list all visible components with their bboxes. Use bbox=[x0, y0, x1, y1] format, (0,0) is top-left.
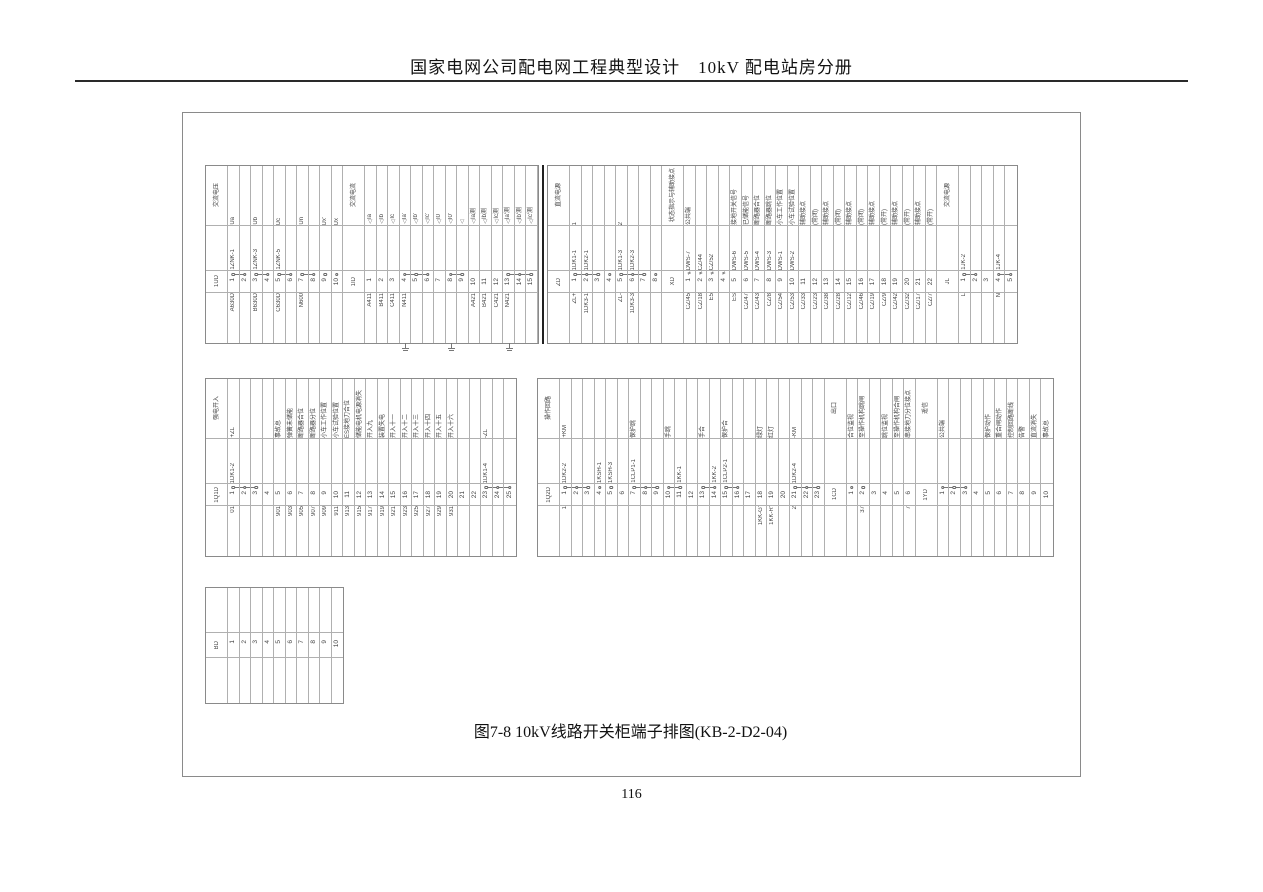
inner-wire-number: 1DK2-1 bbox=[583, 250, 591, 270]
terminal-column: CZ/52≠3E5 bbox=[707, 166, 719, 343]
test-terminal-mark: ▽ bbox=[449, 219, 453, 225]
document-page: 国家电网公司配电网工程典型设计 10kV 配电站房分册 交流电压1UDUa1ZN… bbox=[0, 0, 1263, 892]
terminal-number: 5 bbox=[275, 491, 283, 495]
terminal-point bbox=[608, 273, 612, 277]
terminal-point bbox=[461, 273, 465, 277]
inner-wire-number: 1KSH-1 bbox=[596, 462, 604, 483]
outer-wire-number: CZ/43 bbox=[754, 293, 762, 309]
terminal-point bbox=[817, 486, 821, 490]
outer-wire-number: CZ/8 bbox=[766, 293, 774, 306]
terminal-column: 辅助接点13CZ/38 bbox=[822, 166, 834, 343]
terminal-column: 辅助接点11CZ/33 bbox=[799, 166, 811, 343]
terminal-label: Ib'测 bbox=[516, 207, 524, 219]
terminal-label: Ib' bbox=[412, 213, 420, 219]
terminal-symbol-area bbox=[366, 484, 377, 491]
terminal-number: 11 bbox=[800, 278, 808, 285]
terminal-label: 事故总 bbox=[1043, 420, 1051, 438]
terminal-number: 4 bbox=[264, 640, 272, 644]
terminal-number: 11 bbox=[676, 491, 684, 498]
outer-wire-number: C411 bbox=[389, 293, 397, 307]
inner-wire-number: 1KK-1 bbox=[676, 466, 684, 483]
terminal-symbol-area bbox=[493, 484, 504, 491]
terminal-number: 11 bbox=[344, 491, 352, 498]
terminal-number: 8 bbox=[310, 278, 318, 282]
terminal-point bbox=[301, 273, 305, 277]
terminal-column: 3 bbox=[251, 588, 263, 703]
terminal-column: 1KK-214 bbox=[710, 379, 722, 556]
terminal-column: 5 bbox=[274, 588, 286, 703]
terminal-number: 15 bbox=[846, 278, 854, 285]
outer-wire-number: 929 bbox=[436, 506, 444, 516]
terminal-label: 小车试验位置 bbox=[333, 402, 341, 438]
terminal-label: (常闭) bbox=[812, 209, 820, 225]
terminal-column: 开入十五19929 bbox=[435, 379, 447, 556]
test-terminal-mark: ▽ bbox=[391, 219, 395, 225]
terminal-column: 24 bbox=[493, 379, 505, 556]
terminal-number: 1 bbox=[960, 278, 968, 282]
terminal-point bbox=[575, 486, 579, 490]
terminal-column: 合位监视1 bbox=[847, 379, 859, 556]
terminal-number: 7 bbox=[754, 278, 762, 282]
terminal-column: -ZL1DK1-423 bbox=[481, 379, 493, 556]
outer-wire-number: 911 bbox=[333, 506, 341, 516]
terminal-column: 辅助接点17CZ/19 bbox=[868, 166, 880, 343]
terminal-label: I0' bbox=[447, 213, 455, 219]
terminal-point bbox=[243, 273, 247, 277]
terminal-number: 8 bbox=[310, 640, 318, 644]
terminal-column: +ZL1DK1-2101 bbox=[228, 379, 240, 556]
terminal-label: 开入十二 bbox=[402, 414, 410, 438]
outer-wire-number: CZ/33 bbox=[800, 293, 808, 309]
terminal-column: (常开)18CZ/9 bbox=[880, 166, 892, 343]
terminal-symbol-area bbox=[880, 271, 891, 278]
terminal-number: 1 bbox=[561, 491, 569, 495]
terminal-column: 3 bbox=[583, 379, 595, 556]
inner-wire-number: 1CLP1-1 bbox=[630, 459, 638, 483]
table-header: 交流电流 bbox=[350, 183, 358, 207]
inner-wire-number: DWS-1 bbox=[777, 251, 785, 270]
table-header: 出口 bbox=[831, 402, 839, 414]
terminal-label: 红灯 bbox=[768, 426, 776, 438]
terminal-point bbox=[243, 486, 247, 490]
terminal-symbol-area bbox=[470, 484, 481, 491]
terminal-column: 22 bbox=[470, 379, 482, 556]
terminal-number: 23 bbox=[482, 491, 490, 498]
terminal-number: 5 bbox=[617, 278, 625, 282]
terminal-column: 手跳10 bbox=[664, 379, 676, 556]
terminal-number: 10 bbox=[333, 491, 341, 498]
terminal-number: 21 bbox=[915, 278, 923, 285]
terminal-number: 22 bbox=[803, 491, 811, 498]
terminal-number: 17 bbox=[413, 491, 421, 498]
terminal-column: CZ/44≠2CZ/18 bbox=[696, 166, 708, 343]
terminal-number: 7 bbox=[435, 278, 443, 282]
terminal-column: 1JK-44N bbox=[994, 166, 1006, 343]
terminal-point bbox=[415, 273, 419, 277]
terminal-column: 7 bbox=[297, 588, 309, 703]
terminal-point bbox=[656, 486, 660, 490]
terminal-number: 9 bbox=[1031, 491, 1039, 495]
terminal-symbol-area bbox=[811, 271, 822, 278]
outer-wire-number: 915 bbox=[356, 506, 364, 516]
terminal-point bbox=[794, 486, 798, 490]
terminal-point bbox=[403, 273, 407, 277]
terminal-number: 3 bbox=[983, 278, 991, 282]
terminal-number: 6 bbox=[905, 491, 913, 495]
terminal-point bbox=[496, 486, 500, 490]
terminal-point bbox=[324, 273, 328, 277]
outer-wire-number: ZL- bbox=[617, 293, 625, 302]
terminal-column: 直流消失9 bbox=[1030, 379, 1042, 556]
terminal-point bbox=[587, 486, 591, 490]
terminal-label: Un bbox=[298, 217, 306, 225]
outer-wire-number: 917 bbox=[367, 506, 375, 516]
terminal-number: 7 bbox=[1008, 491, 1016, 495]
terminal-symbol-area bbox=[424, 484, 435, 491]
inner-wire-number: DWS-2 bbox=[789, 251, 797, 270]
terminal-number: 12 bbox=[812, 278, 820, 285]
terminal-number: 14 bbox=[516, 278, 524, 285]
terminal-column: 1DK2-361DK3-3 bbox=[628, 166, 640, 343]
terminal-column: 小车试验位置DWS-210CZ/53 bbox=[788, 166, 800, 343]
terminal-strip-4: 操作回路1Q2D+KM1DK2-211231KSH-141KSH-356保护跳1… bbox=[537, 378, 1054, 557]
terminal-column: 3 bbox=[251, 379, 263, 556]
terminal-column: 5 bbox=[1005, 166, 1017, 343]
terminal-column: Ic测▽12C421 bbox=[492, 166, 504, 343]
terminal-label: 辅助接点 bbox=[800, 201, 808, 225]
terminal-label: Uc bbox=[275, 218, 283, 225]
terminal-column: 小车试验位置10911 bbox=[332, 379, 344, 556]
terminal-point bbox=[805, 486, 809, 490]
table-header: 交流电压 bbox=[213, 183, 221, 207]
terminal-label: 合位监视 bbox=[848, 414, 856, 438]
terminal-symbol-area bbox=[779, 484, 790, 491]
terminal-number: 23 bbox=[814, 491, 822, 498]
terminal-column: Uc1ZNK-55C630D bbox=[274, 166, 286, 343]
terminal-column: 绿灯181KK-G' bbox=[756, 379, 768, 556]
outer-wire-number: CZ/28 bbox=[835, 293, 843, 309]
terminal-point bbox=[449, 273, 453, 277]
outer-wire-number: CZ/53 bbox=[789, 293, 797, 309]
terminal-number: 10 bbox=[789, 278, 797, 285]
terminal-column: 3 bbox=[961, 379, 973, 556]
outer-wire-number: 01 bbox=[229, 506, 237, 513]
outer-wire-number: A421 bbox=[470, 293, 478, 307]
outer-wire-number: CZ/54 bbox=[777, 293, 785, 309]
terminal-column: 公共端1 bbox=[938, 379, 950, 556]
terminal-symbol-area bbox=[914, 271, 925, 278]
terminal-column: 17 bbox=[744, 379, 756, 556]
terminal-label: +ZL bbox=[229, 427, 237, 438]
terminal-label: +KM bbox=[561, 425, 569, 438]
inner-wire-number: DWS-5 bbox=[743, 251, 751, 270]
terminal-column: 储能电机电源消失12915 bbox=[355, 379, 367, 556]
terminal-column: 3 bbox=[982, 166, 994, 343]
terminal-number: 4 bbox=[606, 278, 614, 282]
terminal-point bbox=[667, 486, 671, 490]
terminal-point bbox=[312, 273, 316, 277]
page-number: 116 bbox=[0, 787, 1263, 803]
terminal-symbol-area bbox=[790, 484, 801, 491]
terminal-column: 2 bbox=[572, 379, 584, 556]
terminal-number: 10 bbox=[470, 278, 478, 285]
terminal-symbol-area bbox=[813, 484, 824, 491]
inner-wire-number: 1DK2-3 bbox=[629, 250, 637, 270]
outer-wire-number: 1 bbox=[561, 506, 569, 509]
terminal-label: 开入十四 bbox=[425, 414, 433, 438]
terminal-number: 3 bbox=[871, 491, 879, 495]
terminal-number: 5 bbox=[412, 278, 420, 282]
terminal-strip-1: 交流电压1UDUa1ZNK-11A630D2Ub1ZNK-33B630D4Uc1… bbox=[205, 165, 539, 344]
terminal-column: 7 bbox=[639, 166, 651, 343]
terminal-column: Ib测▽11B421 bbox=[480, 166, 492, 343]
terminal-point bbox=[633, 486, 637, 490]
terminal-label: 断路器跳位 bbox=[766, 195, 774, 225]
outer-wire-number: 1KK-R' bbox=[768, 506, 776, 525]
terminal-label: 开入十五 bbox=[436, 414, 444, 438]
terminal-point bbox=[426, 273, 430, 277]
terminal-column: 12 bbox=[687, 379, 699, 556]
terminal-number: 16 bbox=[858, 278, 866, 285]
terminal-symbol-area bbox=[687, 484, 698, 491]
outer-wire-number: 925 bbox=[413, 506, 421, 516]
terminal-point bbox=[335, 273, 339, 277]
terminal-column: 1 bbox=[228, 588, 240, 703]
terminal-column: 21 bbox=[458, 379, 470, 556]
terminal-label: 控制回路断线 bbox=[1008, 402, 1016, 438]
test-terminal-mark: ▽ bbox=[472, 219, 476, 225]
terminal-column: 11DK1-11ZL+ bbox=[570, 166, 582, 343]
terminal-label: 绿灯 bbox=[757, 426, 765, 438]
strip-divider-line bbox=[542, 165, 544, 344]
terminal-number: 24 bbox=[494, 491, 502, 498]
terminal-number: 5 bbox=[1007, 278, 1015, 282]
terminal-number: 12 bbox=[493, 278, 501, 285]
test-terminal-mark: ▽ bbox=[529, 219, 533, 225]
terminal-point bbox=[232, 273, 236, 277]
terminal-column: Ia测▽10A421 bbox=[469, 166, 481, 343]
terminal-number: 6 bbox=[287, 491, 295, 495]
terminal-label: Ic'测 bbox=[527, 207, 535, 219]
terminal-point bbox=[518, 273, 522, 277]
table-name: XD bbox=[669, 277, 677, 285]
test-terminal-mark: ▽ bbox=[403, 219, 407, 225]
terminal-number: 5 bbox=[894, 491, 902, 495]
terminal-column: Ia'测▽13N421 bbox=[503, 166, 515, 343]
terminal-column: 保护合1CLP2-115 bbox=[721, 379, 733, 556]
terminal-number: 13 bbox=[504, 278, 512, 285]
terminal-number: 8 bbox=[447, 278, 455, 282]
table-name: 1CD bbox=[831, 488, 839, 500]
terminal-label: (常开) bbox=[881, 209, 889, 225]
terminal-point bbox=[644, 486, 648, 490]
terminal-column: 重合闸动作6 bbox=[995, 379, 1007, 556]
test-terminal-mark: ▽ bbox=[495, 219, 499, 225]
terminal-point bbox=[964, 486, 968, 490]
terminal-column: 红灯191KK-R' bbox=[767, 379, 779, 556]
inner-wire-number: CZ/52 bbox=[708, 254, 716, 270]
terminal-number: 21 bbox=[459, 491, 467, 498]
terminal-number: 19 bbox=[768, 491, 776, 498]
outer-wire-number: CZ/19 bbox=[869, 293, 877, 309]
terminal-column: +KM1DK2-211 bbox=[560, 379, 572, 556]
terminal-column: 小车工作位置9909 bbox=[320, 379, 332, 556]
terminal-column: 断路器分位8907 bbox=[309, 379, 321, 556]
inner-wire-number: 1CLP2-1 bbox=[722, 459, 730, 483]
terminal-number: 4 bbox=[720, 278, 728, 282]
table-name: 1Q1D bbox=[213, 487, 221, 503]
terminal-column: 1KSH-14 bbox=[595, 379, 607, 556]
terminal-number: 6 bbox=[424, 278, 432, 282]
terminal-column: 接地开关信号DWS-65ES bbox=[730, 166, 742, 343]
terminal-point bbox=[530, 273, 534, 277]
inner-wire-number: DWS-4 bbox=[754, 251, 762, 270]
terminal-symbol-area bbox=[733, 484, 744, 491]
terminal-label: -ZL bbox=[482, 429, 490, 438]
table-header: 强电开入 bbox=[213, 396, 221, 420]
terminal-number: 2 bbox=[950, 491, 958, 495]
terminal-label: Ia'测 bbox=[504, 207, 512, 219]
terminal-column: 2 bbox=[971, 166, 983, 343]
test-terminal-mark: ▽ bbox=[380, 219, 384, 225]
terminal-column: 4 bbox=[263, 588, 275, 703]
terminal-column: (常开)22CZ/7 bbox=[926, 166, 938, 343]
table-name: 1ID bbox=[350, 277, 358, 286]
terminal-column: 弹簧未储能6903 bbox=[286, 379, 298, 556]
terminal-column: 至操作机构跳闸237 bbox=[858, 379, 870, 556]
terminal-table-1Q1D: 强电开入1Q1D bbox=[206, 379, 228, 556]
terminal-number: 1 bbox=[848, 491, 856, 495]
figure-caption: 图7-8 10kV线路开关柜端子排图(KB-2-D2-04) bbox=[182, 718, 1079, 742]
table-name: ZD bbox=[555, 278, 563, 286]
terminal-column: 保护跳1CLP1-17 bbox=[629, 379, 641, 556]
terminal-label: 手跳 bbox=[665, 426, 673, 438]
terminal-label: 已储能信号 bbox=[743, 195, 751, 225]
terminal-column: 25 bbox=[504, 379, 516, 556]
terminal-label: 辅助接点 bbox=[869, 201, 877, 225]
terminal-label: 公共端 bbox=[939, 420, 947, 438]
terminal-number: 9 bbox=[777, 278, 785, 282]
terminal-label: (常开) bbox=[927, 209, 935, 225]
terminal-column: 辅助接点21CZ/17 bbox=[914, 166, 926, 343]
ground-symbol bbox=[405, 343, 406, 348]
terminal-column: 小车工作位置DWS-19CZ/54 bbox=[776, 166, 788, 343]
terminal-column: 2 bbox=[240, 379, 252, 556]
terminal-column: Ic▽3C411 bbox=[388, 166, 400, 343]
outer-wire-number: 37 bbox=[859, 506, 867, 513]
table-header: 操作回路 bbox=[545, 396, 553, 420]
terminal-label: ES接地刀合位 bbox=[344, 400, 352, 438]
terminal-label: 跳位监视 bbox=[882, 414, 890, 438]
terminal-strip-2: 直流电源ZD11DK1-11ZL+1DK2-121DK3-13421DK1-35… bbox=[547, 165, 1018, 344]
terminal-label: 至操作机构合闸 bbox=[894, 396, 902, 438]
terminal-number: 9 bbox=[321, 491, 329, 495]
terminal-number: 1 bbox=[939, 491, 947, 495]
terminal-symbol-area bbox=[412, 484, 423, 491]
terminal-label: 告警 bbox=[1019, 426, 1027, 438]
terminal-column: 2 bbox=[949, 379, 961, 556]
terminal-number: 6 bbox=[629, 278, 637, 282]
terminal-table-1CD: 出口1CD bbox=[825, 379, 847, 556]
terminal-number: 2 bbox=[241, 278, 249, 282]
terminal-column: 跳位监视4 bbox=[881, 379, 893, 556]
terminal-label: 事故总 bbox=[275, 420, 283, 438]
outer-wire-number: 907 bbox=[310, 506, 318, 516]
terminal-column: 至操作机构合闸5 bbox=[893, 379, 905, 556]
terminal-point bbox=[862, 486, 866, 490]
terminal-column: 开入十一15921 bbox=[389, 379, 401, 556]
terminal-symbol-area bbox=[788, 271, 799, 278]
terminal-symbol-area bbox=[504, 484, 516, 491]
terminal-column: Ia'▽4N411 bbox=[400, 166, 412, 343]
terminal-point bbox=[997, 273, 1001, 277]
outer-wire-number: A630D bbox=[229, 293, 237, 311]
inner-wire-number: 1KSH-3 bbox=[607, 462, 615, 483]
table-name: BD bbox=[213, 641, 221, 649]
outer-wire-number: CZ/46 bbox=[858, 293, 866, 309]
outer-wire-number: 905 bbox=[298, 506, 306, 516]
terminal-number: 13 bbox=[823, 278, 831, 285]
terminal-label: 断路器分位 bbox=[310, 408, 318, 438]
terminal-symbol-area bbox=[1041, 484, 1053, 491]
terminal-number: 1 bbox=[229, 491, 237, 495]
table-header: 交流电源 bbox=[944, 183, 952, 207]
terminal-number: 10 bbox=[665, 491, 673, 498]
table-name: 1Q2D bbox=[545, 487, 553, 503]
terminal-symbol-area bbox=[515, 271, 526, 278]
terminal-column: I0▽7 bbox=[434, 166, 446, 343]
terminal-number: 6 bbox=[743, 278, 751, 282]
outer-wire-number: 7 bbox=[905, 506, 913, 509]
terminal-number: 16 bbox=[734, 491, 742, 498]
terminal-symbol-area bbox=[756, 484, 767, 491]
terminal-label: 保护跳 bbox=[630, 420, 638, 438]
terminal-symbol-area bbox=[503, 271, 514, 278]
terminal-number: 3 bbox=[594, 278, 602, 282]
terminal-symbol-area bbox=[767, 484, 778, 491]
terminal-column: 开入九13917 bbox=[366, 379, 378, 556]
terminal-number: 4 bbox=[264, 278, 272, 282]
terminal-label: Ua bbox=[229, 217, 237, 225]
terminal-column: I0'▽8 bbox=[446, 166, 458, 343]
test-terminal-mark: ▽ bbox=[460, 219, 464, 225]
terminal-strip-5: BD12345678910 bbox=[205, 587, 344, 704]
terminal-number: 2 bbox=[972, 278, 980, 282]
terminal-point bbox=[266, 273, 270, 277]
terminal-symbol-area bbox=[481, 484, 492, 491]
terminal-label: 1 bbox=[571, 222, 579, 225]
outer-wire-number: 923 bbox=[402, 506, 410, 516]
terminal-label: I0 bbox=[435, 214, 443, 219]
terminal-column: 开入十二16923 bbox=[401, 379, 413, 556]
outer-wire-number: C421 bbox=[493, 293, 501, 307]
terminal-number: 1 bbox=[229, 640, 237, 644]
test-terminal-mark: ▽ bbox=[437, 219, 441, 225]
outer-wire-number: N600 bbox=[298, 293, 306, 307]
terminal-column: 20 bbox=[779, 379, 791, 556]
terminal-column: 开入十四18927 bbox=[424, 379, 436, 556]
terminal-number: 17 bbox=[745, 491, 753, 498]
outer-wire-number: 927 bbox=[425, 506, 433, 516]
terminal-column: ▽9 bbox=[457, 166, 469, 343]
terminal-column: 3 bbox=[870, 379, 882, 556]
terminal-column: 辅助接点19CZ/42 bbox=[891, 166, 903, 343]
terminal-table-ZD: 直流电源ZD bbox=[548, 166, 570, 343]
terminal-point bbox=[610, 486, 614, 490]
terminal-point bbox=[507, 273, 511, 277]
terminal-label: 断路器合位 bbox=[298, 408, 306, 438]
terminal-point bbox=[1009, 273, 1013, 277]
